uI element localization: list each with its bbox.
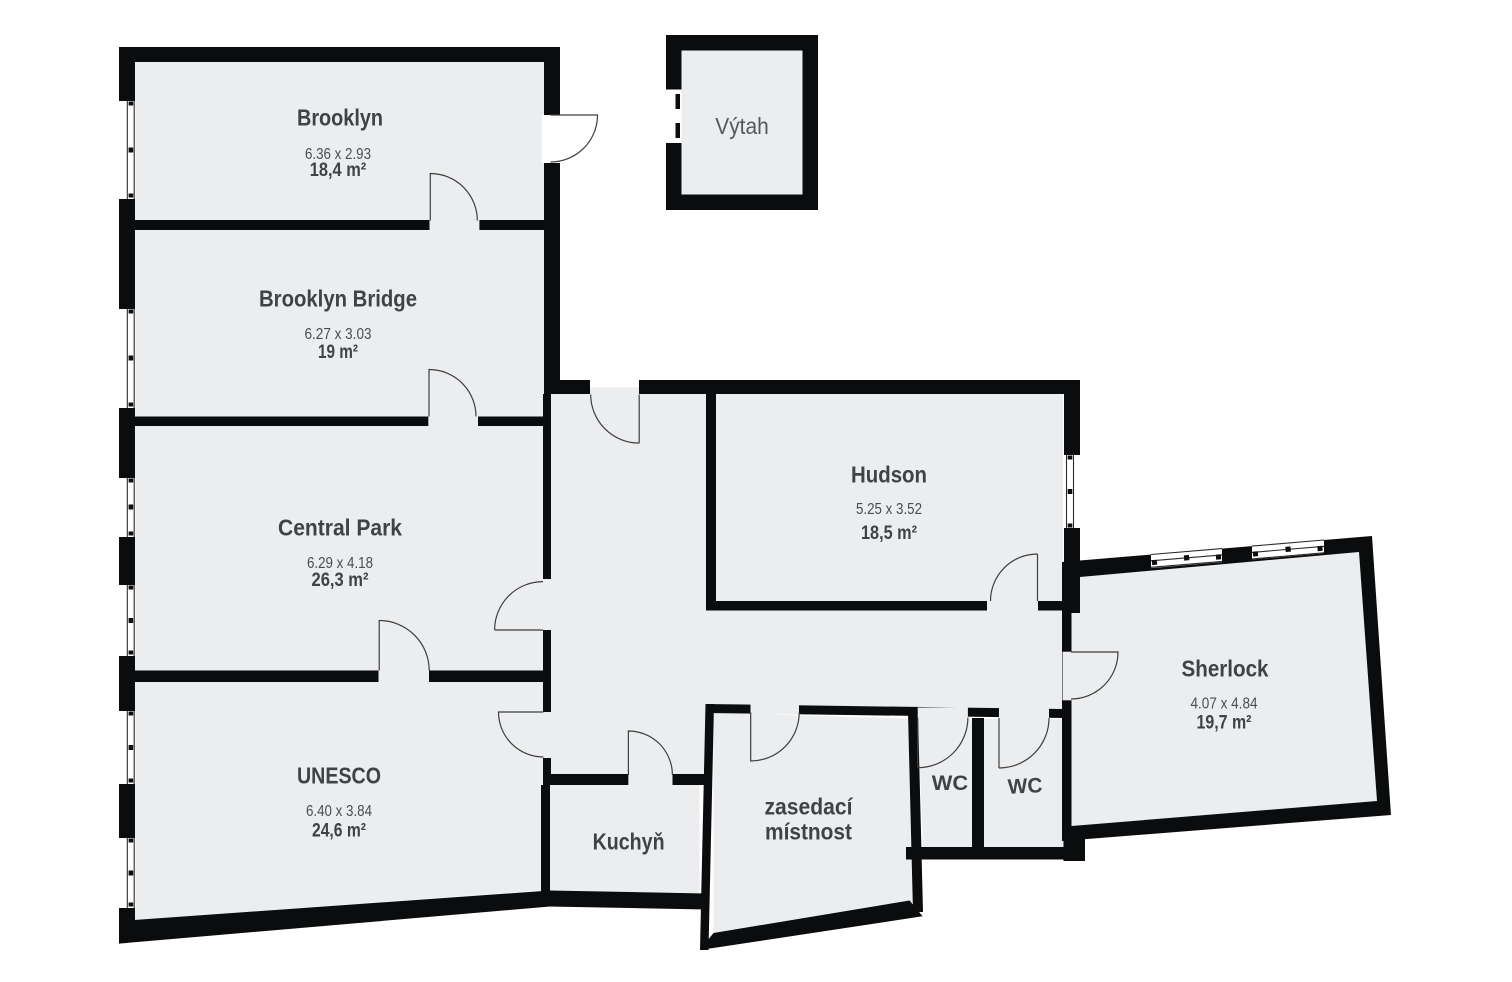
svg-text:4.07 x 4.84: 4.07 x 4.84	[1191, 695, 1258, 712]
svg-text:WC: WC	[932, 772, 968, 795]
svg-text:6.40 x 3.84: 6.40 x 3.84	[306, 803, 372, 820]
svg-text:Brooklyn Bridge: Brooklyn Bridge	[259, 285, 417, 311]
svg-text:6.27 x 3.03: 6.27 x 3.03	[305, 326, 372, 343]
svg-text:Brooklyn: Brooklyn	[297, 104, 383, 130]
svg-text:zasedací: zasedací	[765, 793, 854, 819]
svg-text:19,7 m²: 19,7 m²	[1197, 712, 1252, 733]
svg-text:Central Park: Central Park	[278, 514, 402, 540]
svg-text:UNESCO: UNESCO	[297, 762, 381, 788]
svg-text:místnost: místnost	[765, 818, 852, 844]
svg-text:Kuchyň: Kuchyň	[593, 828, 665, 854]
svg-text:24,6 m²: 24,6 m²	[312, 820, 366, 841]
svg-text:Výtah: Výtah	[715, 113, 769, 139]
svg-text:WC: WC	[1007, 774, 1043, 799]
svg-text:18,4 m²: 18,4 m²	[310, 160, 367, 181]
svg-text:26,3 m²: 26,3 m²	[312, 570, 369, 591]
svg-text:Hudson: Hudson	[851, 461, 927, 487]
svg-text:19 m²: 19 m²	[318, 342, 358, 363]
svg-text:Sherlock: Sherlock	[1182, 655, 1269, 681]
svg-text:18,5 m²: 18,5 m²	[861, 523, 917, 544]
svg-text:5.25 x 3.52: 5.25 x 3.52	[856, 501, 922, 518]
